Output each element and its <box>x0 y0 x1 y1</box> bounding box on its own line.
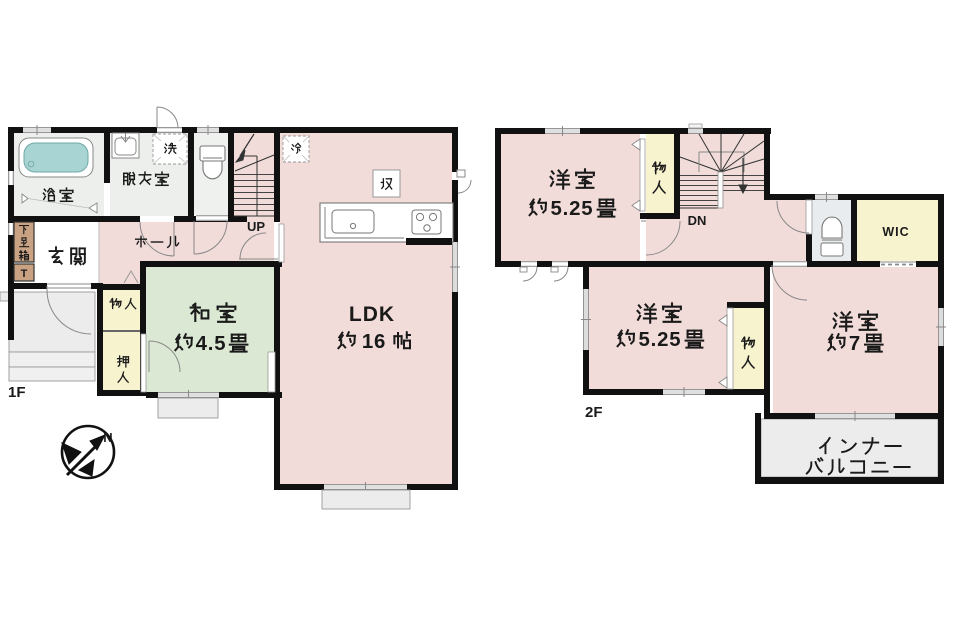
svg-text:5.25: 5.25 <box>551 198 594 220</box>
svg-text:7: 7 <box>849 333 861 355</box>
svg-text:WIC: WIC <box>882 225 909 239</box>
svg-text:4.5: 4.5 <box>196 333 227 355</box>
svg-text:5.25: 5.25 <box>639 329 682 351</box>
svg-text:2F: 2F <box>585 404 603 421</box>
svg-text:LDK: LDK <box>349 303 395 326</box>
svg-text:DN: DN <box>688 213 707 228</box>
svg-text:N: N <box>103 430 112 445</box>
svg-text:T: T <box>21 268 28 280</box>
svg-text:UP: UP <box>247 219 265 234</box>
svg-text:16: 16 <box>362 331 386 353</box>
svg-text:1F: 1F <box>8 384 26 401</box>
